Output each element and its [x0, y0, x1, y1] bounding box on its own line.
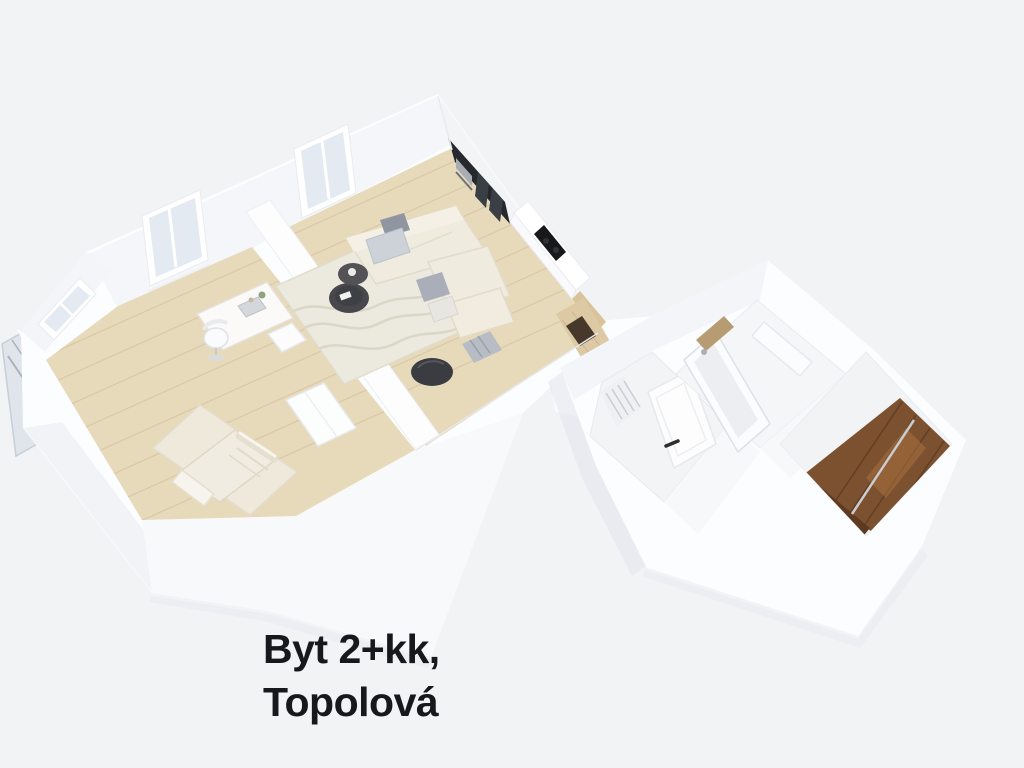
burner	[543, 238, 549, 244]
desk-plant	[259, 292, 266, 299]
coffee-table-small	[338, 263, 368, 285]
caption-line-1: Byt 2+kk,	[263, 626, 440, 672]
table-vase	[348, 268, 356, 276]
burner-2	[553, 247, 559, 253]
caption-line-2: Topolová	[263, 679, 439, 725]
floorplan-render: Byt 2+kk, Topolová	[0, 0, 1024, 768]
coffee-table-large	[329, 283, 369, 313]
bath-faucet	[701, 349, 707, 355]
armchair-dark	[411, 358, 453, 386]
